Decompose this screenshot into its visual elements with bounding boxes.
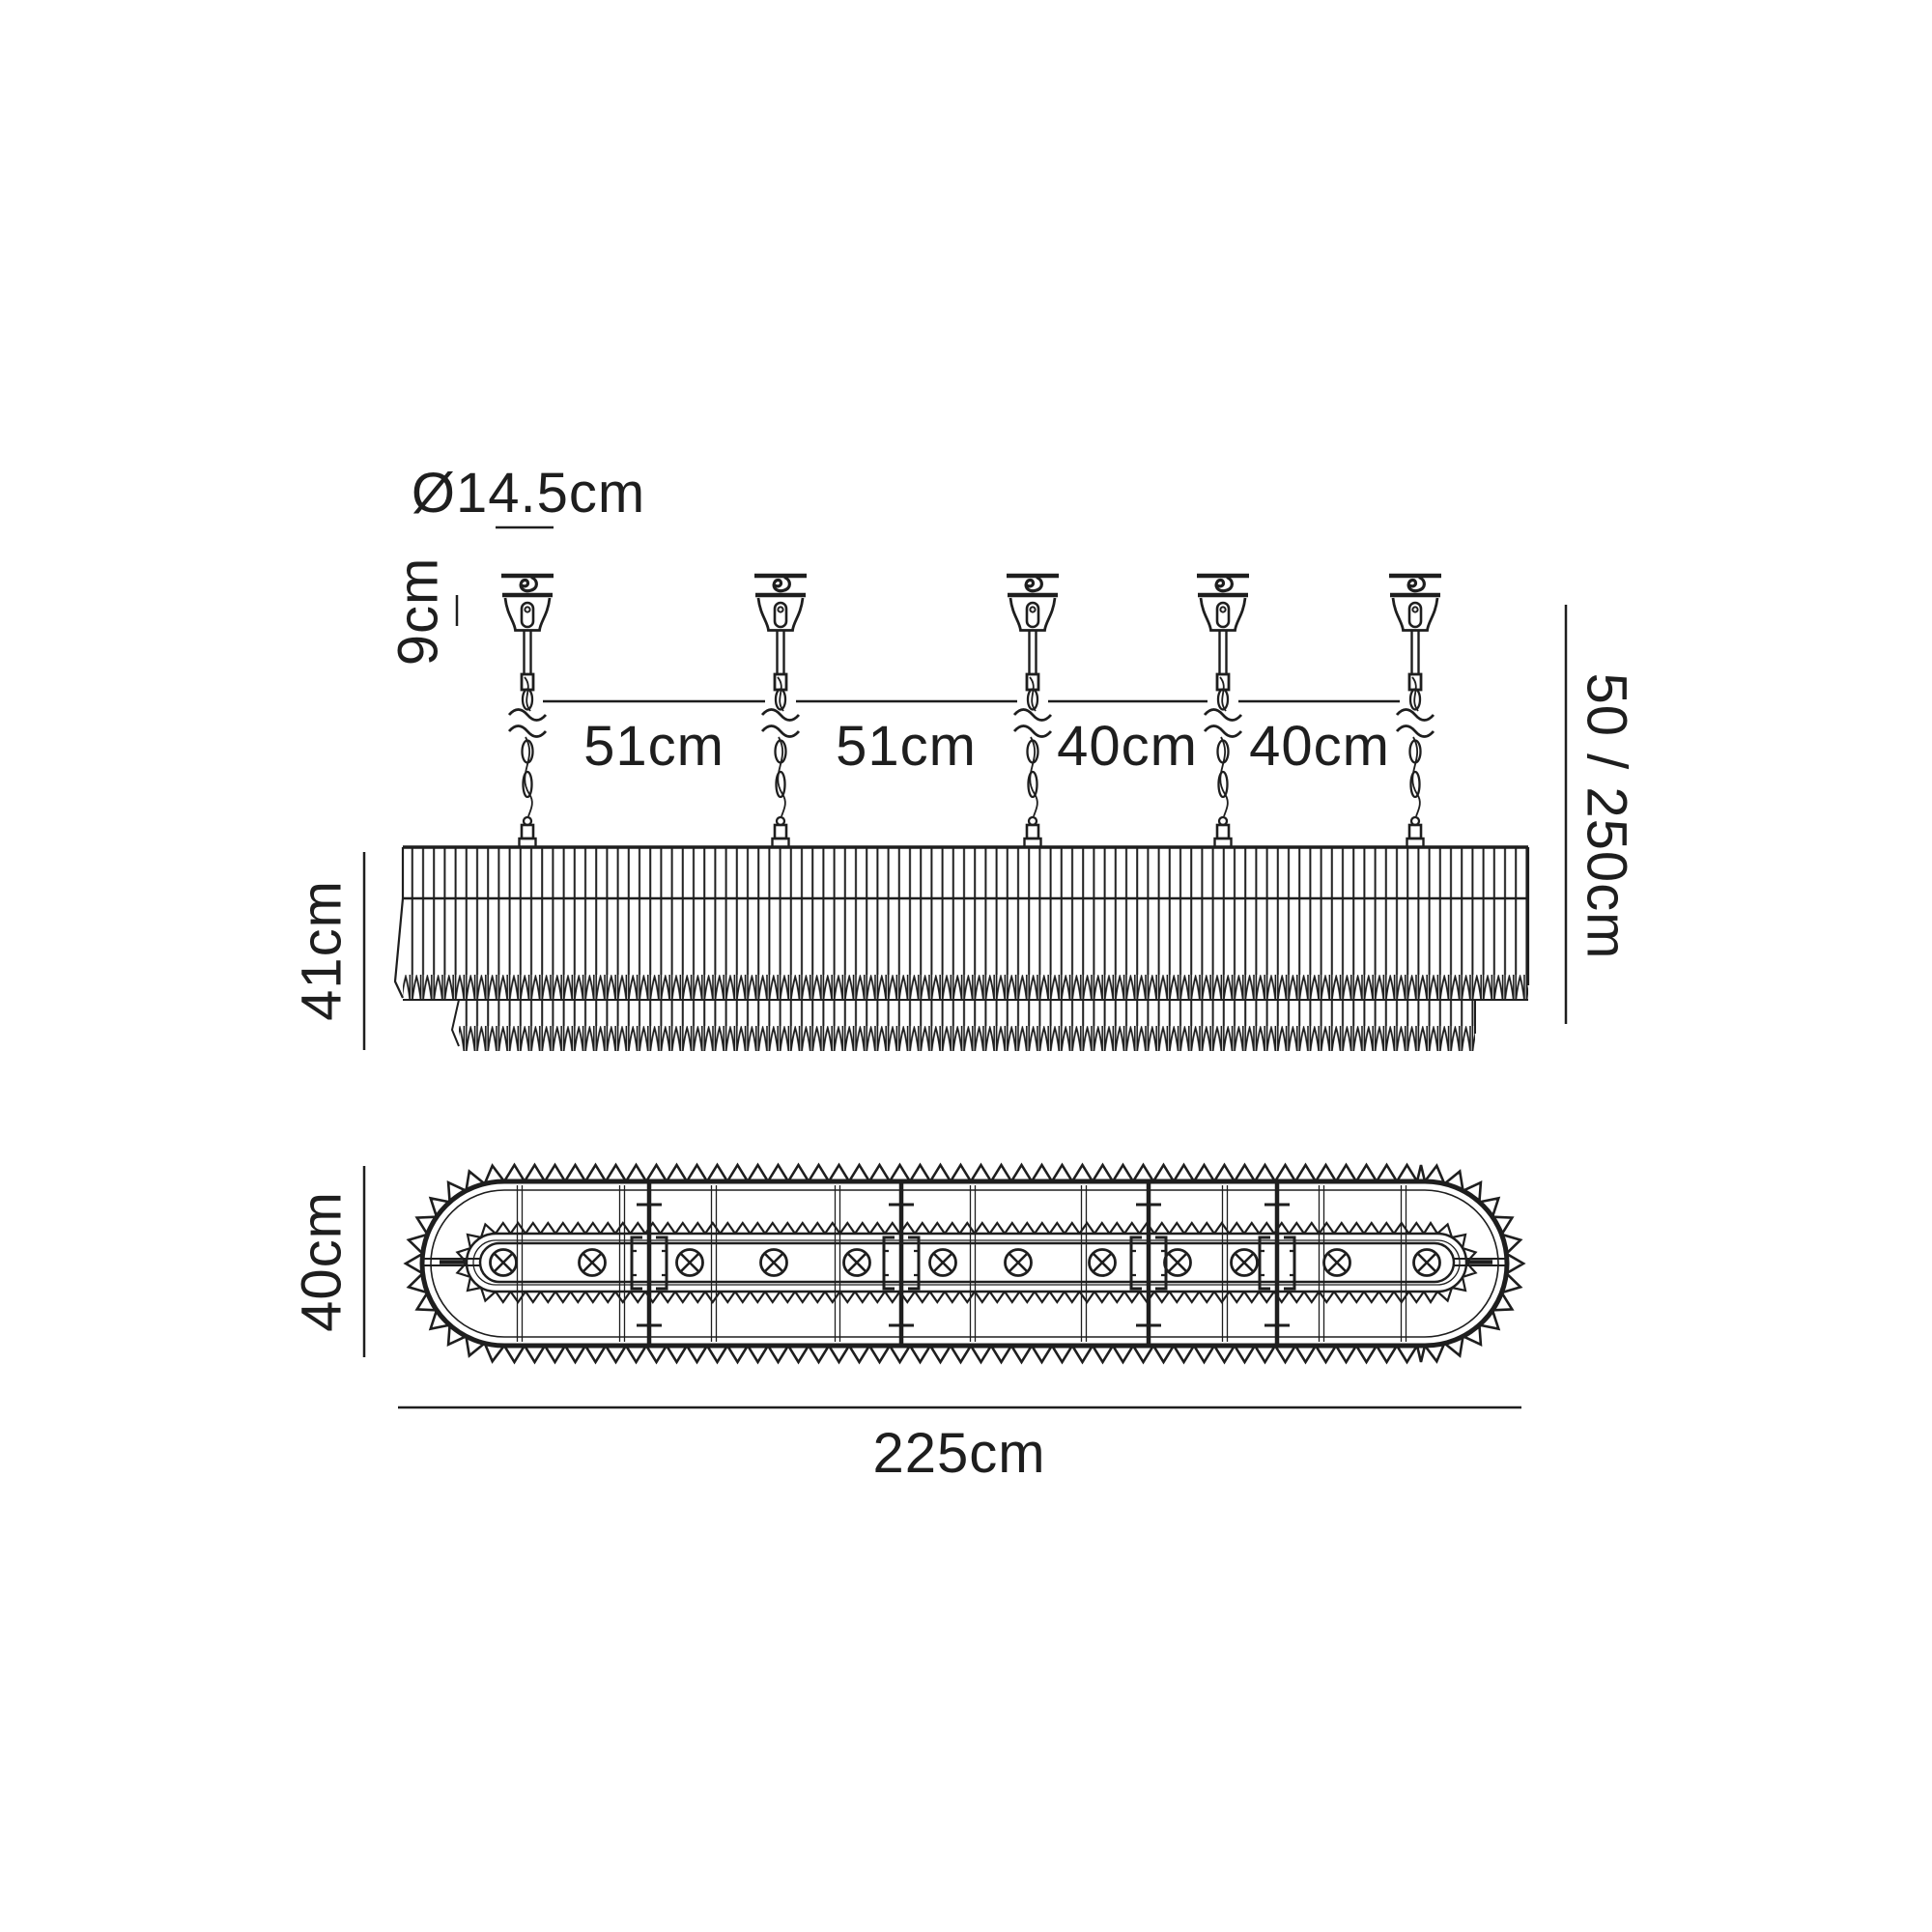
inner-ring-inner-line <box>473 1240 1460 1285</box>
crystal-tier-3 <box>459 1000 1475 1026</box>
lamp-icon <box>491 1250 517 1276</box>
lamp-icon <box>1232 1250 1258 1276</box>
label-canopy-diameter: Ø14.5cm <box>412 462 645 525</box>
suspension-2 <box>754 576 807 847</box>
label-spacing-c: 40cm <box>1057 715 1198 778</box>
outer-crystal-teeth <box>406 1165 1523 1362</box>
chandelier-dimension-diagram: Ø14.5cm 9cm 51cm 51cm 40cm 40cm 50 / 250… <box>0 0 1932 1932</box>
label-spacing-b: 51cm <box>836 715 977 778</box>
lamp-icon <box>677 1250 703 1276</box>
lamp-icon <box>1090 1250 1116 1276</box>
label-plan-width: 40cm <box>291 1191 354 1332</box>
plan-outer-frame <box>422 1181 1507 1346</box>
label-canopy-height: 9cm <box>387 557 450 667</box>
lamp-icon <box>844 1250 870 1276</box>
crystal-tier-3-tips <box>459 1026 1475 1051</box>
plan-view <box>406 1165 1523 1362</box>
lamp-icon <box>761 1250 787 1276</box>
chandelier-body-side <box>395 847 1528 1051</box>
crystal-tier-2-tips <box>403 975 1528 1000</box>
suspension-4 <box>1197 576 1249 847</box>
suspension-1 <box>501 576 554 847</box>
lamp-channel <box>480 1243 1454 1282</box>
crystal-tier-2 <box>403 898 1528 975</box>
lamp-icon <box>1324 1250 1350 1276</box>
suspension-3 <box>1007 576 1059 847</box>
label-spacing-d: 40cm <box>1249 715 1390 778</box>
lamp-icon <box>1006 1250 1032 1276</box>
suspension-5 <box>1389 576 1441 847</box>
crystal-band-top <box>403 847 1528 898</box>
label-body-height: 41cm <box>291 880 354 1021</box>
label-drop-height: 50 / 250cm <box>1576 673 1638 960</box>
lamp-icon <box>580 1250 606 1276</box>
diagram-page: Ø14.5cm 9cm 51cm 51cm 40cm 40cm 50 / 250… <box>0 0 1932 1932</box>
side-elevation-view <box>395 576 1528 1051</box>
lamp-icon <box>1414 1250 1440 1276</box>
label-plan-length: 225cm <box>872 1422 1045 1485</box>
label-spacing-a: 51cm <box>583 715 724 778</box>
lamp-icon <box>1165 1250 1191 1276</box>
frame-dividers-thick <box>649 1183 1277 1344</box>
lamp-icon <box>930 1250 956 1276</box>
